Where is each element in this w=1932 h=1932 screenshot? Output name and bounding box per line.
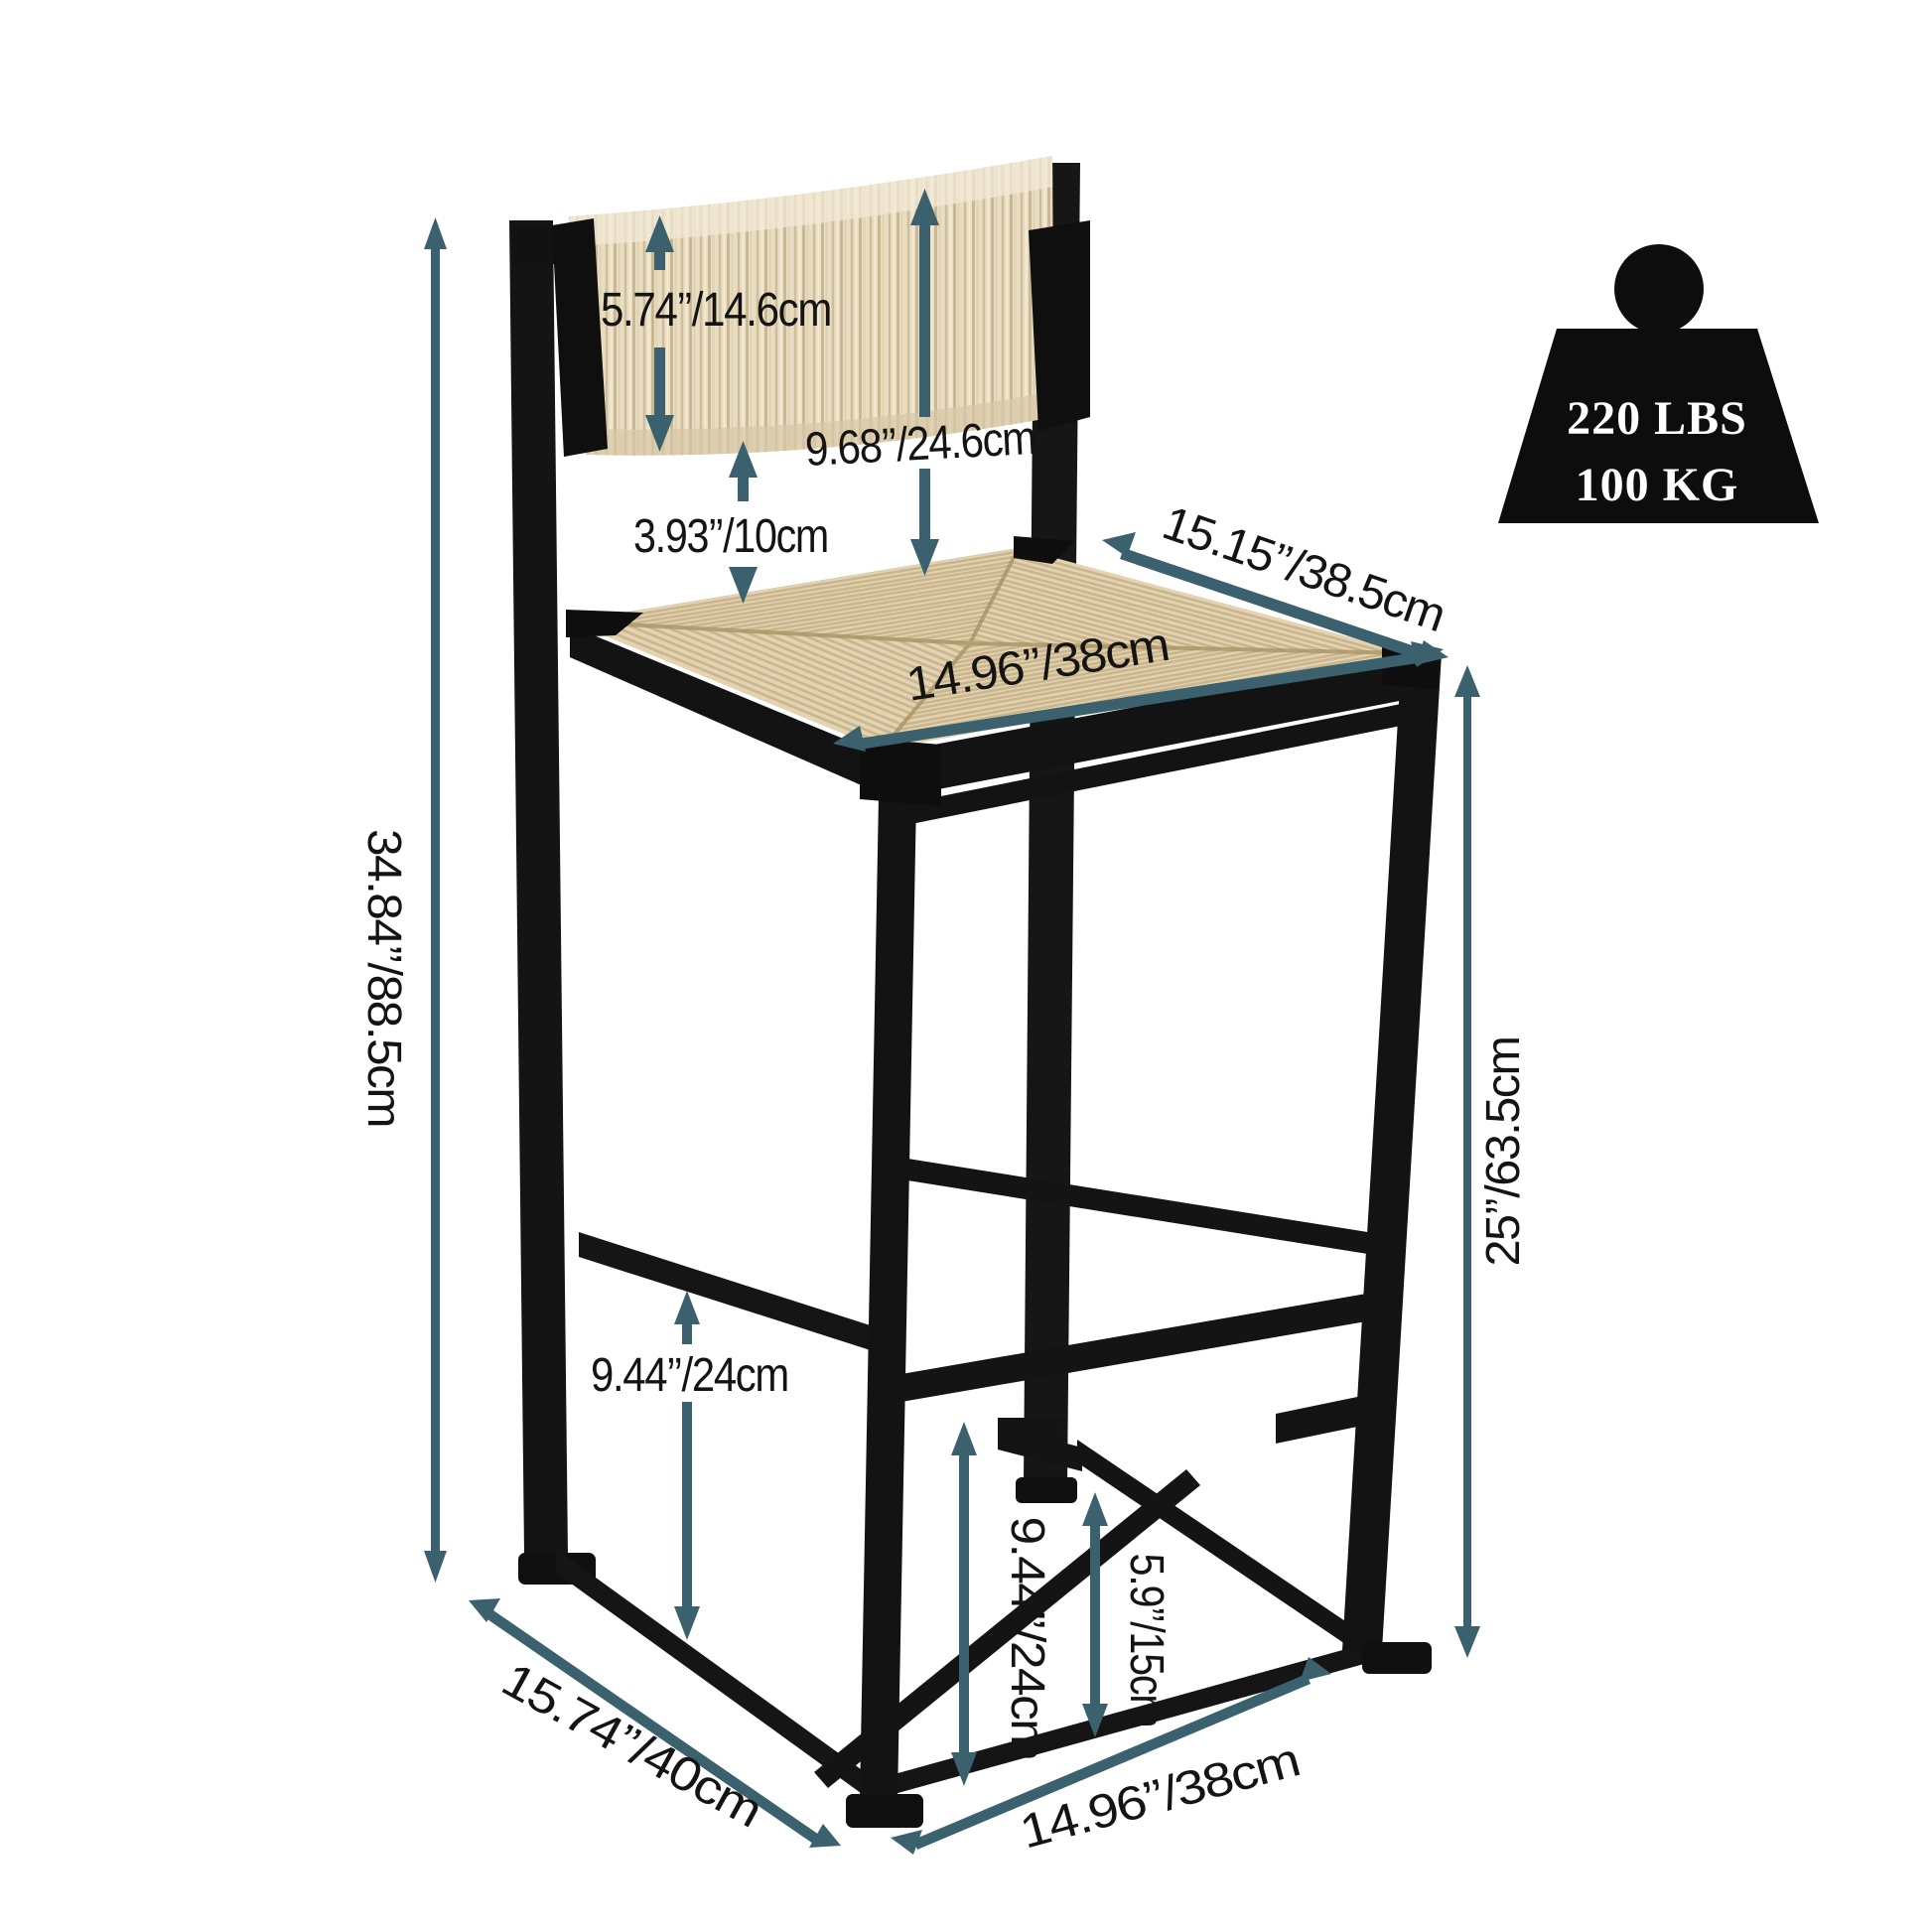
svg-text:25’’/63.5cm: 25’’/63.5cm bbox=[1477, 1037, 1530, 1267]
svg-text:34.84’’/88.5cm: 34.84’’/88.5cm bbox=[357, 829, 410, 1127]
svg-text:9.44’’/24cm: 9.44’’/24cm bbox=[591, 1349, 788, 1402]
svg-text:9.44’’/24cm: 9.44’’/24cm bbox=[1001, 1517, 1053, 1760]
svg-text:3.93’’/10cm: 3.93’’/10cm bbox=[633, 510, 828, 563]
svg-text:5.74’’/14.6cm: 5.74’’/14.6cm bbox=[601, 284, 831, 337]
svg-text:220 LBS: 220 LBS bbox=[1567, 392, 1747, 445]
svg-text:100 KG: 100 KG bbox=[1576, 459, 1739, 511]
svg-text:5.9’’/15cm: 5.9’’/15cm bbox=[1120, 1554, 1173, 1727]
